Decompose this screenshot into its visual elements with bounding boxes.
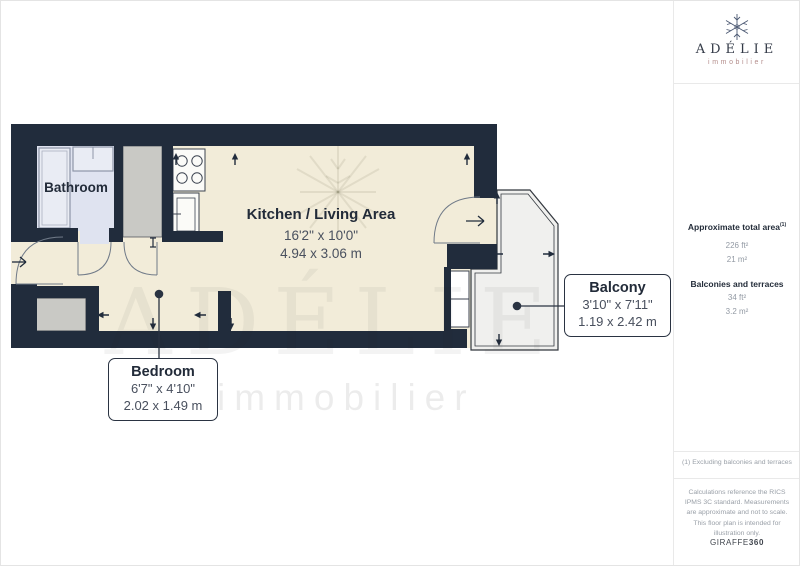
floorplan-page: ADÉLIE immobilier Bathroom Kitchen / Liv…: [0, 0, 800, 566]
kitchen-dim-imperial: 16'2" x 10'0": [237, 227, 405, 245]
brand-watermark-subtitle: immobilier: [217, 377, 476, 419]
disclaimer: Calculations reference the RICS IPMS 3C …: [681, 488, 793, 539]
provider-brand: GIRAFFE360: [673, 538, 800, 547]
footnote: (1) Excluding balconies and terraces: [673, 459, 800, 466]
kitchen-sink: [173, 193, 199, 236]
balcony-callout: Balcony 3'10" x 7'11" 1.19 x 2.42 m: [564, 274, 671, 337]
kitchen-title: Kitchen / Living Area: [237, 206, 405, 223]
balconies-heading: Balconies and terraces: [673, 279, 800, 289]
kitchen-dim-metric: 4.94 x 3.06 m: [237, 245, 405, 263]
balcony-dim-imperial: 3'10" x 7'11": [567, 296, 668, 313]
bathroom-sink: [73, 147, 113, 171]
total-area-m: 21 m²: [673, 255, 800, 264]
logo-subtitle: immobilier: [673, 59, 800, 66]
divider: [674, 83, 800, 84]
total-area-heading: Approximate total area(1): [673, 222, 800, 232]
balcony-title: Balcony: [567, 280, 668, 296]
balconies-ft: 34 ft²: [673, 293, 800, 302]
footnote-ref: (1): [780, 222, 786, 228]
balcony-dim-metric: 1.19 x 2.42 m: [567, 313, 668, 330]
bathroom-doorway-floor: [80, 228, 109, 244]
stove: [173, 149, 205, 191]
bedroom-title: Bedroom: [111, 364, 215, 380]
bathroom-label: Bathroom: [31, 180, 121, 195]
bedroom-callout: Bedroom 6'7" x 4'10" 2.02 x 1.49 m: [108, 358, 218, 421]
total-area-ft: 226 ft²: [673, 241, 800, 250]
divider: [674, 478, 800, 479]
snowflake-logo-icon: [722, 12, 752, 42]
balconies-m: 3.2 m²: [673, 307, 800, 316]
divider: [674, 451, 800, 452]
kitchen-label: Kitchen / Living Area 16'2" x 10'0" 4.94…: [237, 206, 405, 263]
bedroom-dim-imperial: 6'7" x 4'10": [111, 380, 215, 397]
logo-title: ADÉLIE: [673, 42, 800, 57]
bedroom-dim-metric: 2.02 x 1.49 m: [111, 397, 215, 414]
bedroom-wardrobe: [36, 298, 86, 331]
storage-closet: [123, 146, 162, 237]
